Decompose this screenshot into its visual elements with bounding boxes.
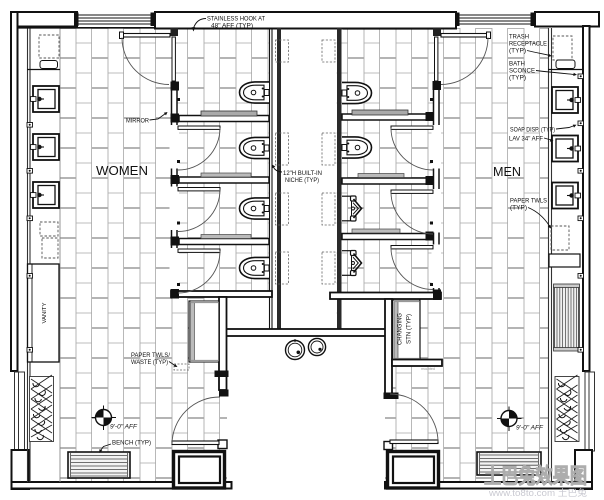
svg-text:BATH: BATH: [509, 62, 525, 68]
svg-text:(TYP): (TYP): [510, 206, 527, 212]
svg-text:(TYP): (TYP): [509, 76, 526, 82]
svg-text:12"H BUILT-IN: 12"H BUILT-IN: [283, 171, 322, 177]
svg-text:mounted: mounted: [421, 366, 435, 371]
svg-text:MIRROR: MIRROR: [126, 119, 150, 125]
svg-text:BENCH (TYP): BENCH (TYP): [112, 441, 151, 447]
svg-text:MEN: MEN: [493, 164, 521, 179]
svg-text:9'-0" AFF: 9'-0" AFF: [110, 425, 137, 431]
svg-text:48" AFF (TYP): 48" AFF (TYP): [211, 24, 253, 30]
svg-text:VANITY: VANITY: [42, 302, 48, 323]
svg-text:NICHE (TYP): NICHE (TYP): [285, 178, 319, 184]
svg-text:WASTE (TYP): WASTE (TYP): [131, 360, 168, 366]
svg-text:PAPER TWLS: PAPER TWLS: [510, 199, 547, 205]
svg-text:PAPER TWLS/: PAPER TWLS/: [131, 353, 170, 359]
svg-text:TRASH: TRASH: [509, 35, 529, 41]
svg-text:CHANGING: CHANGING: [398, 313, 404, 345]
svg-text:9'-0" AFF: 9'-0" AFF: [516, 426, 543, 432]
svg-text:WOMEN: WOMEN: [96, 163, 148, 178]
svg-text:SOAP DISP. (TYP): SOAP DISP. (TYP): [510, 128, 555, 134]
svg-text:土巴兔效果图: 土巴兔效果图: [484, 464, 587, 488]
svg-text:RECEPTACLE: RECEPTACLE: [509, 42, 547, 48]
svg-text:www.to8to.com 土巴兔: www.to8to.com 土巴兔: [488, 487, 587, 498]
svg-text:STN (TYP): STN (TYP): [407, 314, 413, 344]
svg-text:SCONCE: SCONCE: [509, 69, 535, 75]
svg-text:STAINLESS HOOK AT: STAINLESS HOOK AT: [207, 17, 265, 23]
svg-text:(TYP): (TYP): [509, 49, 526, 55]
svg-text:LAV 34" AFF: LAV 34" AFF: [509, 137, 543, 143]
